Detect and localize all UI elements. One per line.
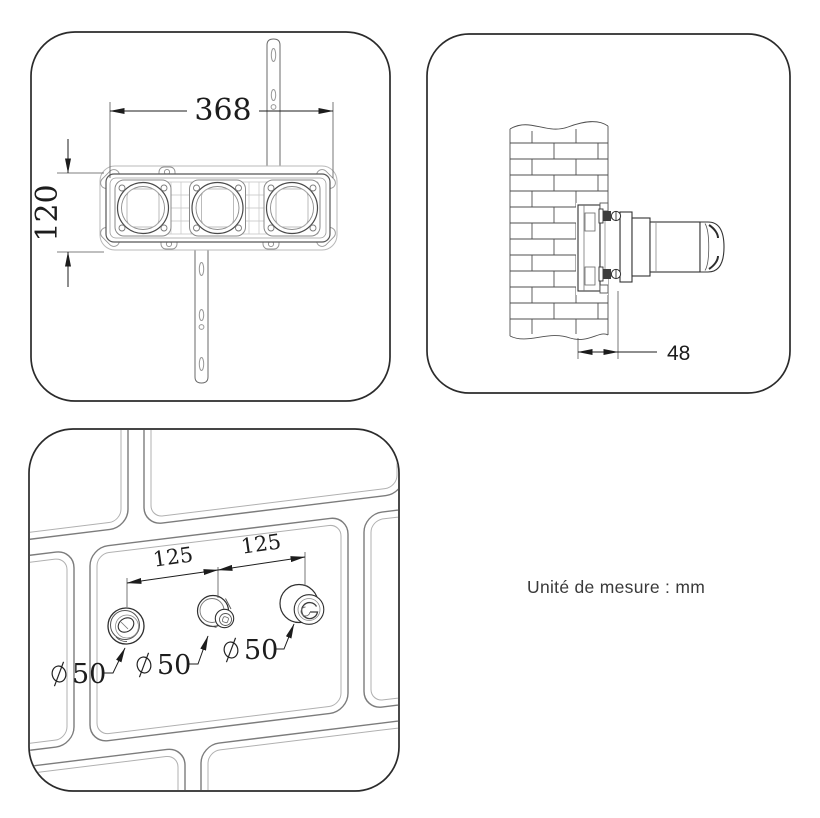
clamp-bolt-bottom <box>599 267 621 281</box>
mounting-plate <box>106 174 330 242</box>
clamp-bolt-top <box>599 209 621 223</box>
panel-front-view: 368 120 <box>30 31 391 402</box>
panel-wall-view: 125 125 50 50 50 <box>28 428 400 792</box>
valve-port-left <box>115 180 171 236</box>
bottom-clip <box>600 285 608 293</box>
svg-text:50: 50 <box>244 635 278 666</box>
valve-port-right <box>264 180 320 236</box>
trim-spout-outlet <box>108 608 144 644</box>
dim-height-value: 120 <box>30 184 65 241</box>
unit-note: Unité de mesure : mm <box>527 577 705 598</box>
panel-side-view: 48 <box>426 33 791 394</box>
lower-strap <box>195 235 208 383</box>
svg-text:50: 50 <box>72 659 106 690</box>
dim-width-value: 368 <box>194 93 251 128</box>
valve-port-center <box>190 180 246 236</box>
spout-cap <box>700 222 724 272</box>
body-step <box>632 218 650 276</box>
installation-diagram: 368 120 <box>0 0 820 818</box>
valve-ports <box>115 180 320 236</box>
svg-text:50: 50 <box>157 650 191 681</box>
spout-cylinder <box>650 222 700 272</box>
dim-depth-value: 48 <box>667 342 690 365</box>
body-flange <box>620 212 632 282</box>
